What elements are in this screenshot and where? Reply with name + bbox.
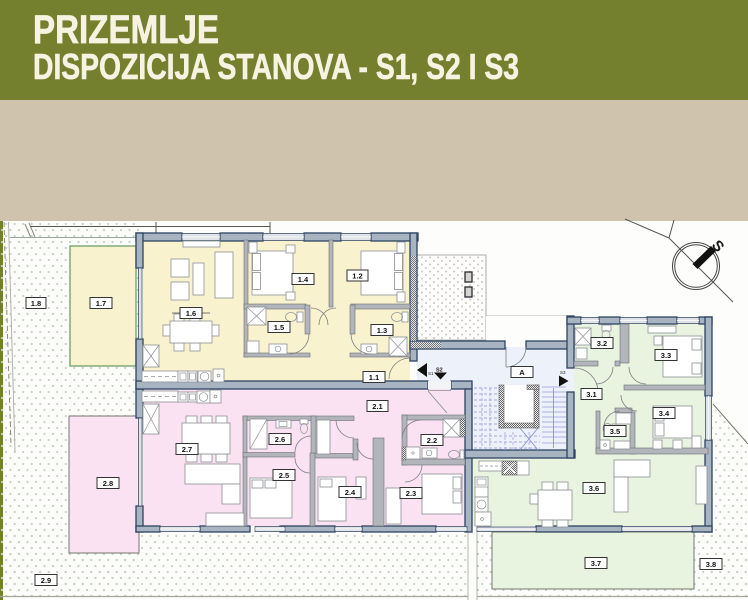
svg-text:3.5: 3.5: [610, 427, 620, 436]
svg-text:A: A: [519, 368, 525, 377]
svg-text:2.6: 2.6: [275, 435, 285, 444]
svg-text:1.7: 1.7: [96, 299, 106, 308]
svg-text:3.1: 3.1: [586, 390, 596, 399]
svg-text:3.6: 3.6: [589, 484, 599, 493]
svg-text:3.2: 3.2: [597, 339, 607, 348]
svg-text:1.3: 1.3: [377, 326, 387, 335]
svg-text:2.1: 2.1: [372, 402, 382, 411]
svg-text:2.2: 2.2: [427, 436, 437, 445]
svg-text:2.8: 2.8: [103, 479, 113, 488]
svg-text:S1: S1: [428, 371, 434, 376]
svg-text:2.3: 2.3: [406, 489, 416, 498]
svg-text:1.1: 1.1: [369, 373, 379, 382]
svg-text:2.7: 2.7: [182, 445, 192, 454]
svg-text:2.4: 2.4: [345, 488, 356, 497]
svg-text:DISPOZICIJA STANOVA - S1, S2 I: DISPOZICIJA STANOVA - S1, S2 I S3: [33, 46, 519, 87]
svg-text:3.7: 3.7: [591, 559, 601, 568]
svg-text:1.4: 1.4: [298, 275, 309, 284]
svg-text:3.3: 3.3: [661, 351, 671, 360]
svg-text:2.9: 2.9: [41, 576, 51, 585]
svg-text:1.5: 1.5: [274, 323, 284, 332]
svg-text:1.2: 1.2: [352, 272, 362, 281]
svg-text:2.5: 2.5: [279, 471, 289, 480]
svg-text:3.4: 3.4: [659, 409, 670, 418]
svg-text:1.6: 1.6: [186, 309, 196, 318]
svg-text:3.8: 3.8: [706, 560, 716, 569]
svg-text:S2: S2: [436, 368, 443, 374]
svg-text:1.8: 1.8: [31, 299, 41, 308]
svg-text:S3: S3: [560, 370, 566, 375]
